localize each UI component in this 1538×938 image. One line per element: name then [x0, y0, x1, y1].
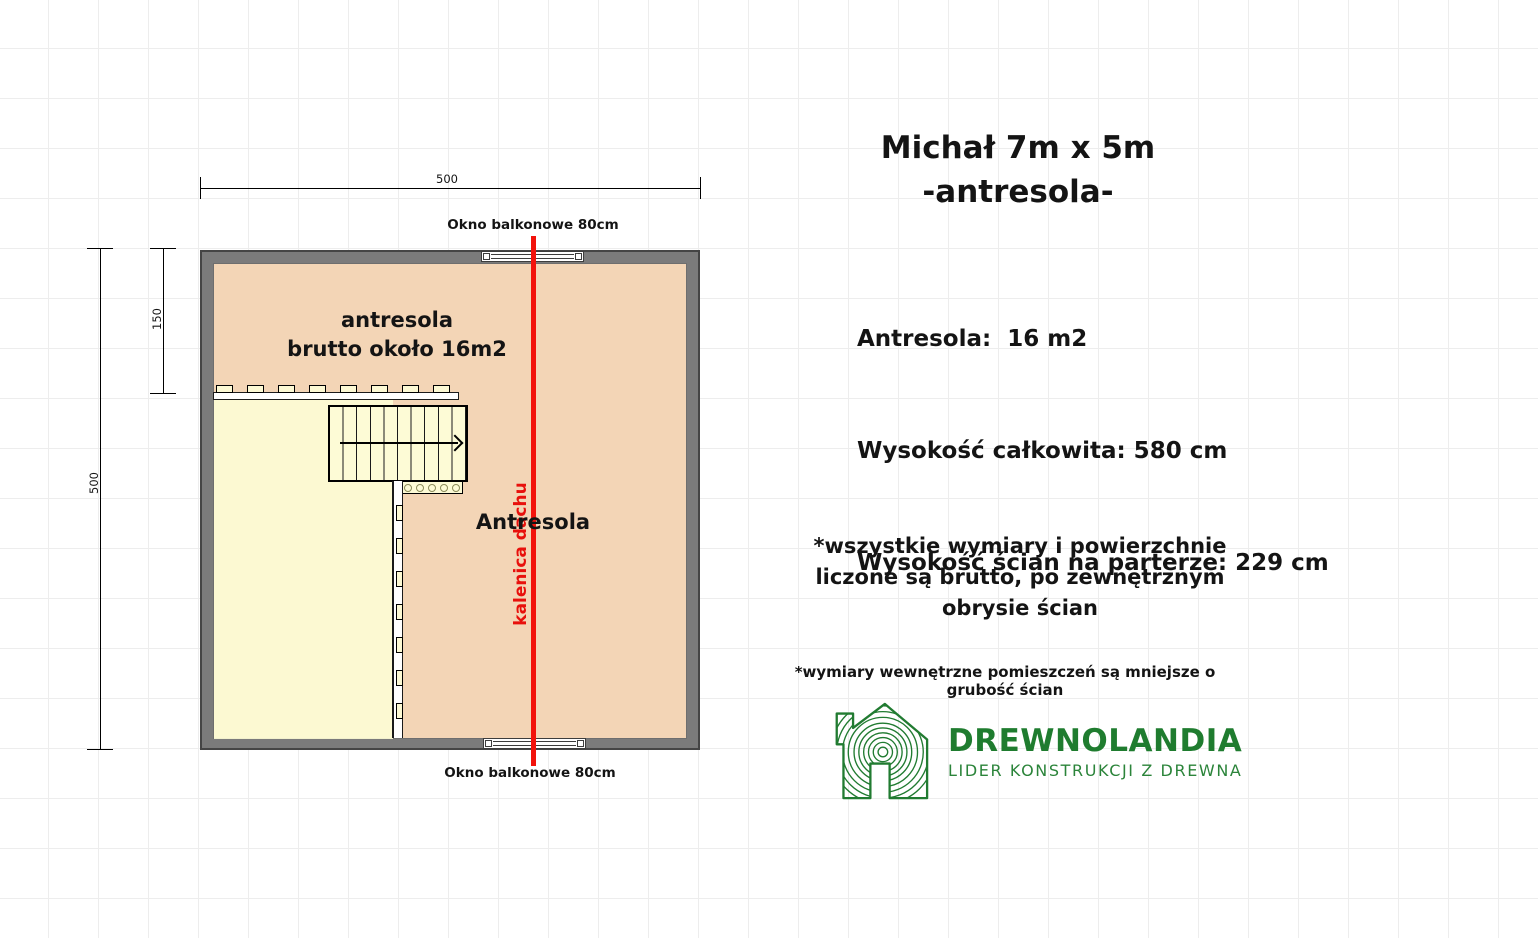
window-frame-cap [575, 253, 582, 260]
roof-ridge-label: kalenica dachu [511, 469, 531, 639]
railing-post [396, 604, 403, 620]
page-title-line1: Michał 7m x 5m [818, 126, 1218, 170]
dimension-height-tick-top [87, 248, 113, 249]
measurement-note-line2: liczone są brutto, po zewnętrznym [790, 562, 1250, 593]
baluster-circle [440, 484, 448, 492]
railing-horizontal-posts [216, 385, 460, 393]
mezzanine-area-label-line2: brutto około 16m2 [247, 335, 547, 364]
drewnolandia-logo: DREWNOLANDIA LIDER KONSTRUKCJI Z DREWNA [830, 700, 1242, 804]
stair-balusters-strip [401, 481, 463, 494]
stair-direction-arrow-line [340, 442, 458, 444]
logo-text-block: DREWNOLANDIA LIDER KONSTRUKCJI Z DREWNA [948, 724, 1242, 780]
logo-name: DREWNOLANDIA [948, 724, 1242, 758]
railing-post [396, 505, 403, 521]
page-title: Michał 7m x 5m -antresola- [818, 126, 1218, 214]
railing-post [247, 385, 264, 393]
railing-post [396, 571, 403, 587]
dimension-height-tick-bottom [87, 749, 113, 750]
page-canvas: 500 500 150 kalenica dachu antresola bru… [0, 0, 1538, 938]
mezzanine-area-label-line1: antresola [247, 306, 547, 335]
railing-post [396, 703, 403, 719]
measurement-note: *wszystkie wymiary i powierzchnie liczon… [790, 531, 1250, 624]
measurement-note-line3: obrysie ścian [790, 593, 1250, 624]
dimension-width-tick-right [700, 177, 701, 199]
railing-post [371, 385, 388, 393]
dimension-width-line [200, 188, 701, 189]
railing-post [433, 385, 450, 393]
mezzanine-area-label: antresola brutto około 16m2 [247, 306, 547, 364]
spec-total-height: Wysokość całkowita: 580 cm [857, 438, 1329, 464]
footnote: *wymiary wewnętrzne pomieszczeń są mniej… [762, 663, 1248, 699]
railing-post [340, 385, 357, 393]
railing-post [396, 670, 403, 686]
railing-post [309, 385, 326, 393]
railing-horizontal-bar [213, 392, 459, 400]
dimension-height-label: 500 [87, 453, 101, 513]
railing-post [278, 385, 295, 393]
dimension-mezzanine-label: 150 [150, 289, 164, 349]
dimension-mezzanine-tick-bottom [150, 393, 176, 394]
baluster-circle [428, 484, 436, 492]
dimension-mezzanine-tick-top [150, 248, 176, 249]
railing-vertical-posts [396, 505, 403, 719]
railing-post [402, 385, 419, 393]
drewnolandia-house-icon [830, 700, 930, 804]
baluster-circle [452, 484, 460, 492]
baluster-circle [404, 484, 412, 492]
window-bottom-label: Okno balkonowe 80cm [430, 765, 630, 781]
window-frame-cap [577, 740, 584, 747]
dimension-width-label: 500 [397, 172, 497, 186]
room-label: Antresola [433, 510, 633, 534]
page-title-line2: -antresola- [818, 170, 1218, 214]
window-frame-cap [483, 253, 490, 260]
measurement-note-line1: *wszystkie wymiary i powierzchnie [790, 531, 1250, 562]
spec-area: Antresola: 16 m2 [857, 326, 1329, 352]
railing-post [396, 637, 403, 653]
railing-post [396, 538, 403, 554]
window-frame-cap [485, 740, 492, 747]
dimension-width-tick-left [200, 177, 201, 199]
railing-post [216, 385, 233, 393]
baluster-circle [416, 484, 424, 492]
window-top-label: Okno balkonowe 80cm [433, 217, 633, 233]
logo-tagline: LIDER KONSTRUKCJI Z DREWNA [948, 761, 1242, 780]
